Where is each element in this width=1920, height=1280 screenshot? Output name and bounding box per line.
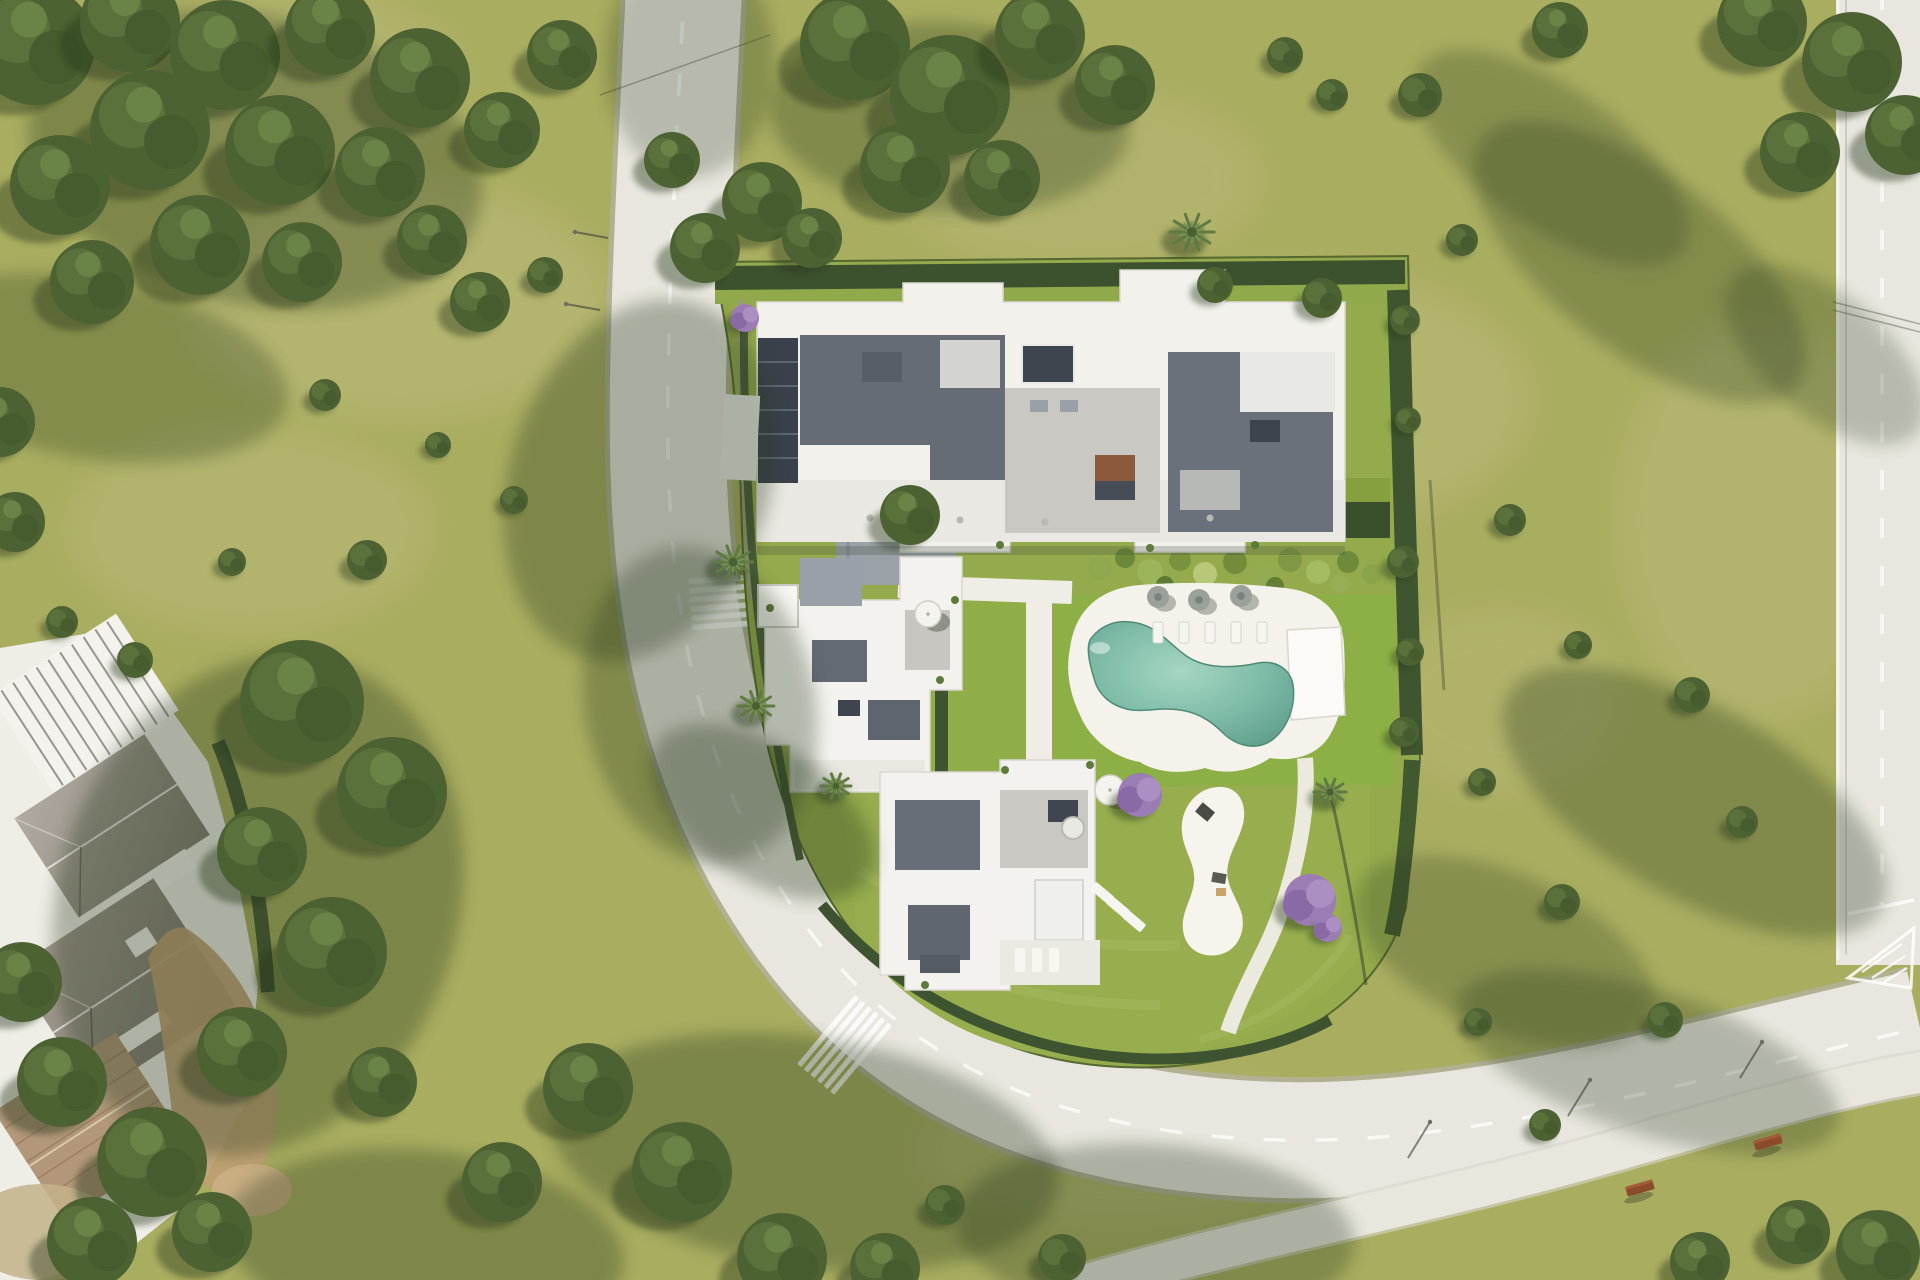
roof-patch [1180, 470, 1240, 510]
lamp-post [1428, 1120, 1432, 1124]
lamp-post [1760, 1040, 1764, 1044]
skylight [838, 700, 860, 716]
shrub [1331, 575, 1349, 593]
ac-unit [1060, 400, 1078, 412]
ac-unit [1030, 400, 1048, 412]
roof-dark [868, 700, 920, 740]
site-plan-svg [0, 0, 1920, 1280]
jacuzzi [1062, 817, 1084, 839]
roof-box [1035, 880, 1083, 940]
lamp-post [573, 230, 577, 234]
divider-hedge [935, 690, 948, 772]
play-equipment [1216, 888, 1226, 896]
roof-box [940, 340, 1000, 388]
lamp-post [1588, 1078, 1592, 1082]
roof-dark [895, 800, 980, 870]
sun-lounger [1179, 622, 1189, 643]
sun-lounger [1231, 622, 1241, 643]
vent [1250, 420, 1280, 442]
roof-box [1240, 352, 1335, 412]
shrub [1193, 562, 1217, 586]
skylight [1022, 345, 1074, 383]
lamp-post [564, 302, 568, 306]
sun-lounger [1205, 622, 1215, 643]
apartment-building-south [880, 760, 1100, 990]
apartment-building-north [720, 270, 1345, 555]
walkway-vertical [1026, 598, 1052, 770]
shrub [1362, 564, 1382, 584]
sun-lounger [1257, 622, 1267, 643]
roof-unit [920, 955, 960, 973]
roof-gravel [1005, 388, 1160, 533]
pool-steps [1090, 642, 1110, 654]
aerial-site-render [0, 0, 1920, 1280]
shrub [1088, 556, 1112, 580]
roof-patch [800, 558, 862, 606]
pool-area [1068, 583, 1345, 772]
roof-unit [862, 352, 902, 382]
roof-dark [812, 640, 867, 682]
wood-pergola [1095, 455, 1135, 481]
east-hedge [1398, 290, 1412, 755]
sun-lounger [1153, 622, 1163, 643]
roof-dark [908, 905, 970, 960]
shade-pavilion [1287, 627, 1345, 720]
north-hedge [715, 272, 1405, 278]
shrub [1306, 560, 1330, 584]
